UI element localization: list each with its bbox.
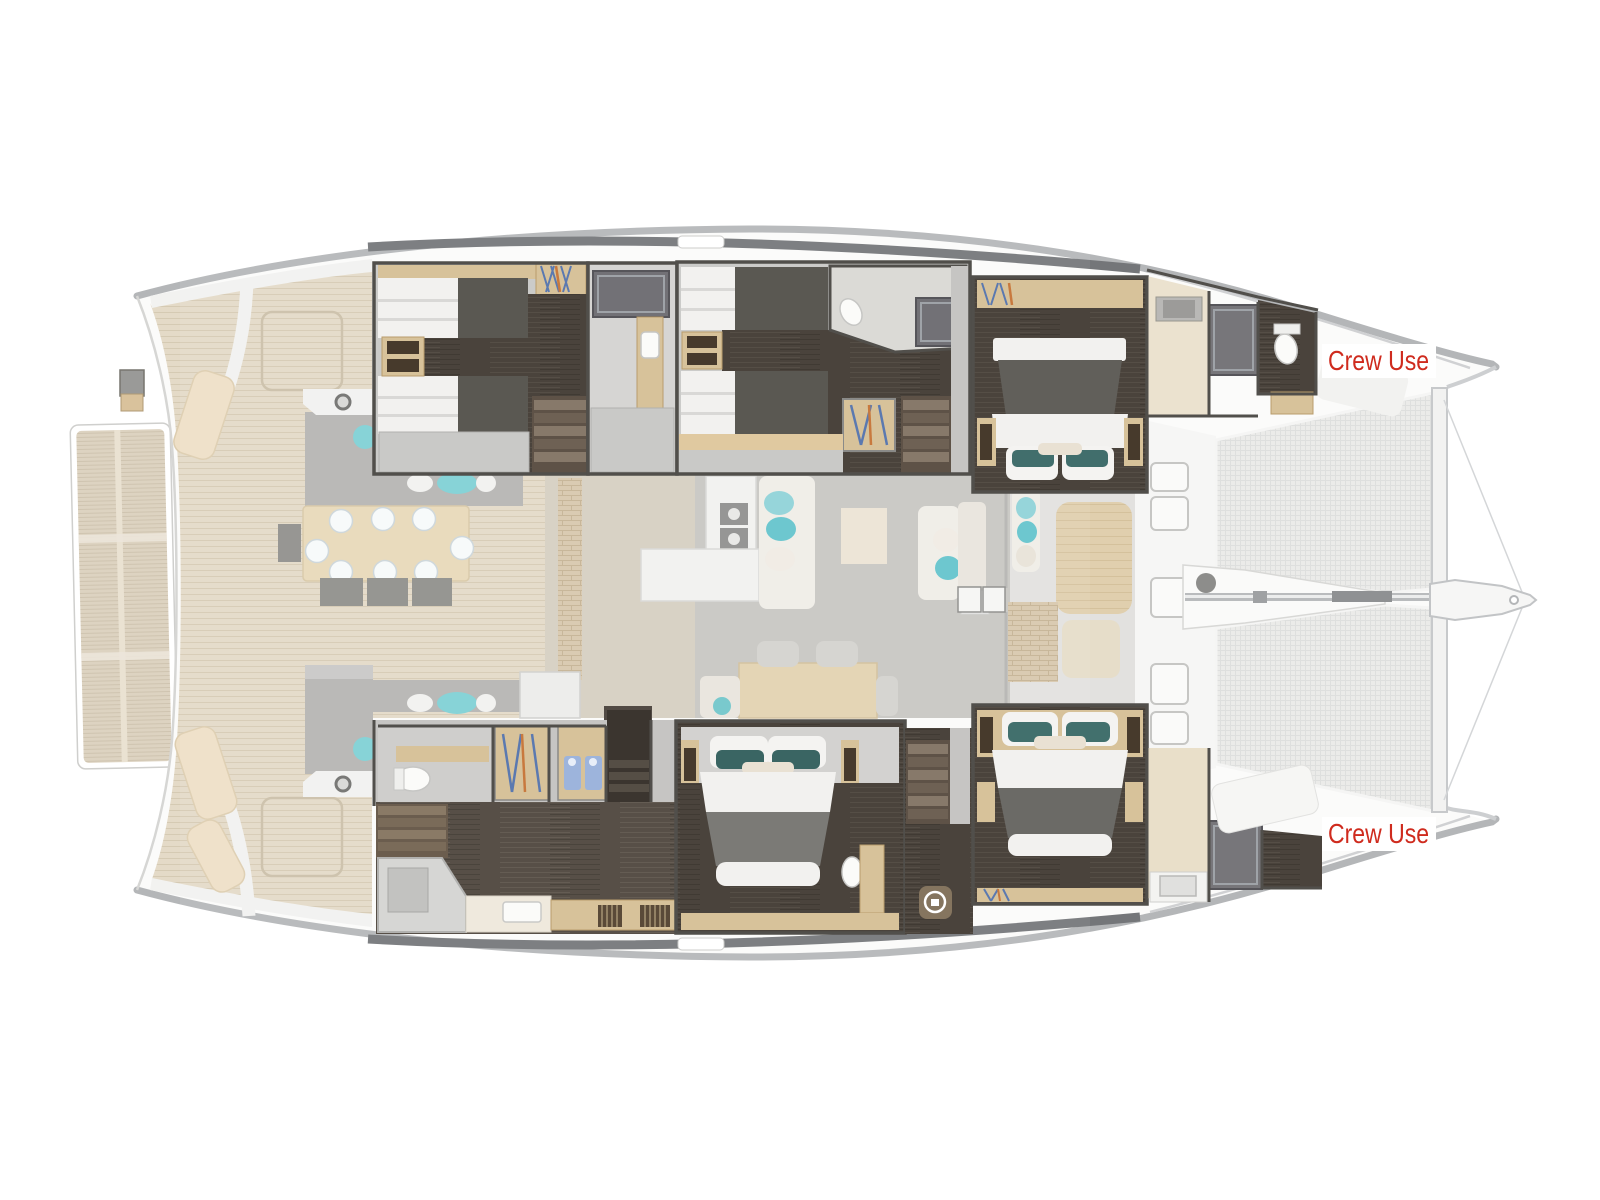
svg-text:Crew Use: Crew Use	[1328, 345, 1429, 376]
svg-text:Crew Use: Crew Use	[1328, 818, 1429, 849]
